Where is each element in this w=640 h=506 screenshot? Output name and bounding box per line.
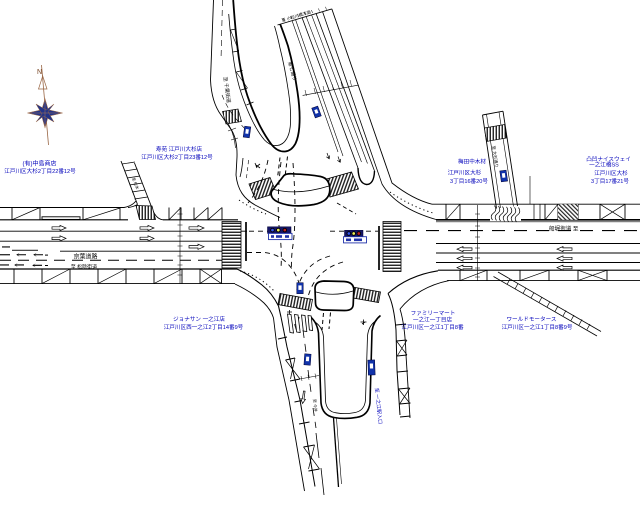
svg-text:京葉道路: 京葉道路 <box>73 253 97 261</box>
svg-text:船堀街道 至: 船堀街道 至 <box>549 225 579 233</box>
svg-text:江戸川区一之江1丁目8番: 江戸川区一之江1丁目8番 <box>401 323 464 331</box>
svg-text:(有)中島商店: (有)中島商店 <box>23 160 57 168</box>
svg-text:江戸川区大杉2丁目23番12号: 江戸川区大杉2丁目23番12号 <box>141 153 213 161</box>
svg-text:江戸川区大杉: 江戸川区大杉 <box>594 169 628 177</box>
svg-text:ワールドモータース: ワールドモータース <box>506 315 556 323</box>
svg-text:一之江橋SS: 一之江橋SS <box>589 161 619 169</box>
svg-text:ファミリーマート: ファミリーマート <box>411 310 456 317</box>
svg-text:ジョナサン 一之江店: ジョナサン 一之江店 <box>173 315 225 323</box>
svg-text:N: N <box>37 69 42 76</box>
svg-text:3丁目16番20号: 3丁目16番20号 <box>450 178 488 185</box>
svg-text:江戸川区大杉: 江戸川区大杉 <box>448 169 482 177</box>
svg-text:3丁目17番21号: 3丁目17番21号 <box>591 178 629 185</box>
svg-text:一之江一丁目店: 一之江一丁目店 <box>413 316 453 324</box>
svg-text:江戸川区一之江1丁目8番9号: 江戸川区一之江1丁目8番9号 <box>502 323 573 331</box>
svg-text:至 松陰街道: 至 松陰街道 <box>71 264 97 271</box>
svg-text:梅田中木材: 梅田中木材 <box>458 158 486 166</box>
svg-text:江戸川区大杉2丁目22番12号: 江戸川区大杉2丁目22番12号 <box>4 167 76 175</box>
svg-text:寿苑 江戸川大杉店: 寿苑 江戸川大杉店 <box>156 145 203 153</box>
svg-text:江戸川区西一之江2丁目14番9号: 江戸川区西一之江2丁目14番9号 <box>164 323 244 331</box>
